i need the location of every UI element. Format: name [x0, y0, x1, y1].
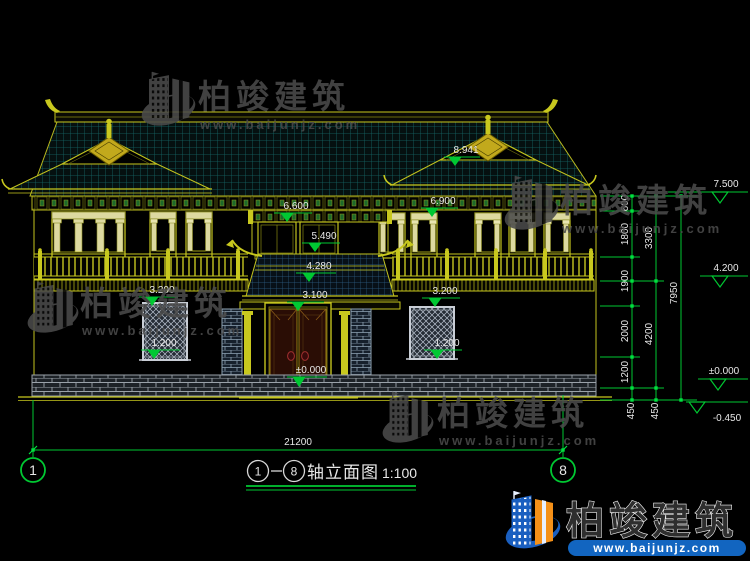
cad-elevation-screenshot: 8.941 6.900 6.600 5.490 4.280 3.100: [0, 0, 750, 561]
svg-text:4200: 4200: [644, 322, 655, 345]
watermark-left: 柏竣建筑 www.baijunjz.com: [24, 282, 242, 338]
footer-logo-brand: 柏竣建筑: [566, 501, 738, 543]
eave-frieze-band: [32, 196, 596, 210]
footer-logo-site: www.baijunjz.com: [592, 541, 721, 555]
elevation-drawing-canvas: 8.941 6.900 6.600 5.490 4.280 3.100: [0, 0, 750, 561]
svg-text:2000: 2000: [620, 319, 631, 342]
svg-text:1900: 1900: [620, 269, 631, 292]
svg-text:8: 8: [291, 465, 298, 479]
gable-finial-left: [107, 124, 112, 138]
door-handle-right: [302, 352, 309, 361]
watermark-site: www.baijunjz.com: [199, 117, 360, 132]
svg-text:1.200: 1.200: [151, 338, 176, 349]
arched-window: [186, 212, 212, 257]
watermark-site: www.baijunjz.com: [561, 221, 722, 236]
svg-text:1200: 1200: [620, 360, 631, 383]
svg-text:1: 1: [255, 465, 262, 479]
svg-text:3.200: 3.200: [432, 286, 457, 297]
svg-text:8: 8: [559, 462, 567, 478]
svg-text:4.200: 4.200: [713, 263, 738, 274]
watermark-site: www.baijunjz.com: [438, 433, 599, 448]
plinth-brick-band: [32, 375, 596, 396]
svg-text:8.941: 8.941: [453, 145, 478, 156]
svg-text:3.100: 3.100: [302, 290, 327, 301]
title-scale: 1:100: [382, 465, 417, 481]
watermark-bottom: 柏竣建筑 www.baijunjz.com: [379, 392, 599, 448]
title-text: 轴立面图: [307, 463, 379, 482]
watermark-site: www.baijunjz.com: [81, 323, 242, 338]
center-eave-band: [252, 210, 388, 222]
svg-text:1.200: 1.200: [434, 338, 459, 349]
watermark-brand: 柏竣建筑: [198, 78, 350, 115]
svg-text:21200: 21200: [284, 437, 312, 448]
svg-text:6.900: 6.900: [430, 196, 455, 207]
watermark-brand: 柏竣建筑: [560, 182, 712, 219]
door-handle-left: [288, 352, 295, 361]
svg-text:6.600: 6.600: [283, 201, 308, 212]
window-triple-left: [52, 212, 125, 258]
gable-finial-right: [486, 120, 491, 134]
svg-text:450: 450: [626, 402, 637, 419]
watermark-brand: 柏竣建筑: [80, 285, 232, 322]
arched-window: [150, 212, 176, 257]
svg-text:7.500: 7.500: [713, 179, 738, 190]
svg-text:4.280: 4.280: [306, 261, 331, 272]
logo-tower-blue: [512, 496, 531, 545]
watermark-brand: 柏竣建筑: [437, 395, 589, 432]
svg-text:7950: 7950: [669, 281, 680, 304]
svg-text:±0.000: ±0.000: [709, 366, 740, 377]
svg-text:450: 450: [650, 402, 661, 419]
svg-text:±0.000: ±0.000: [296, 365, 327, 376]
arched-window: [411, 213, 437, 258]
svg-text:5.490: 5.490: [311, 231, 336, 242]
svg-text:-0.450: -0.450: [713, 413, 742, 424]
svg-text:1: 1: [29, 462, 37, 478]
balcony-floor-beam-right: [392, 280, 594, 291]
